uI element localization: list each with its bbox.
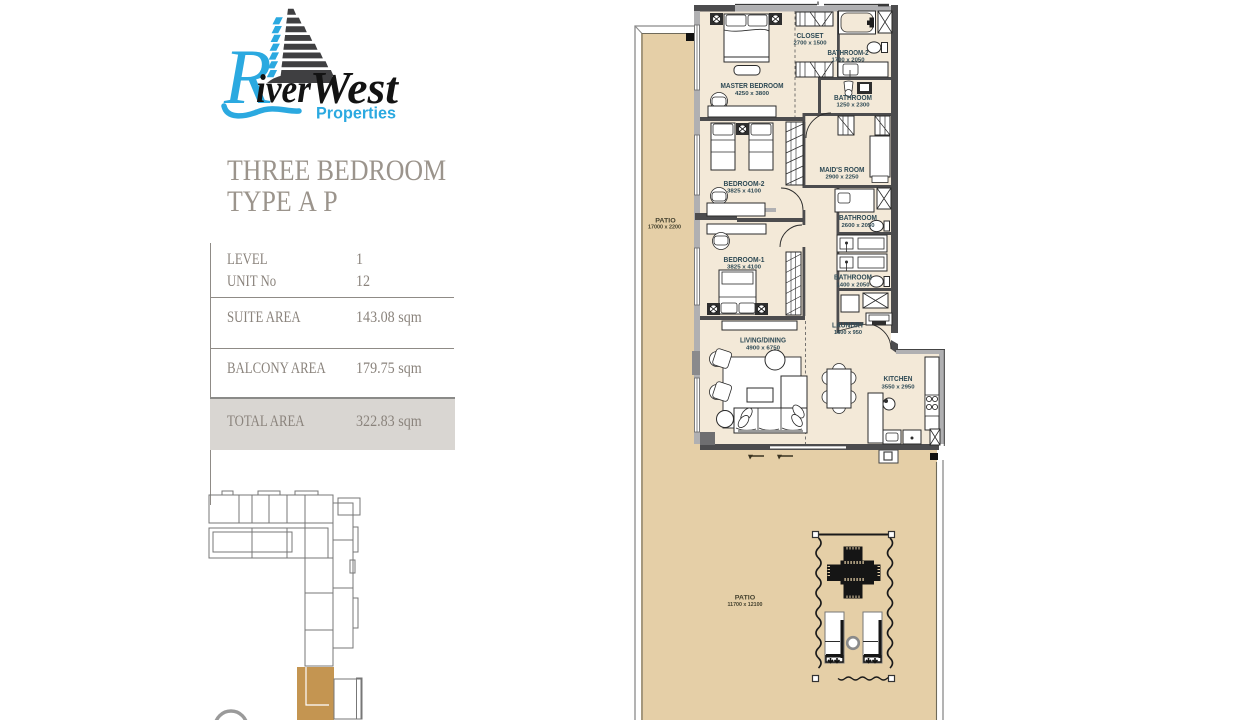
svg-text:BATHROOM: BATHROOM [839, 215, 877, 222]
svg-text:4900 x 6750: 4900 x 6750 [746, 346, 780, 352]
svg-text:11700 x 12100: 11700 x 12100 [728, 602, 763, 608]
svg-text:BEDROOM-2: BEDROOM-2 [724, 181, 765, 188]
svg-text:BEDROOM-1: BEDROOM-1 [724, 257, 765, 264]
svg-text:2700 x 1500: 2700 x 1500 [794, 41, 827, 47]
svg-text:2600 x 2050: 2600 x 2050 [842, 223, 875, 229]
svg-text:MAID'S ROOM: MAID'S ROOM [820, 167, 865, 174]
svg-text:2900 x 2250: 2900 x 2250 [826, 175, 859, 181]
svg-text:LIVING/DINING: LIVING/DINING [740, 337, 787, 344]
svg-text:MASTER BEDROOM: MASTER BEDROOM [721, 83, 784, 90]
svg-text:CLOSET: CLOSET [797, 33, 825, 40]
svg-text:Properties: Properties [316, 105, 396, 123]
svg-text:3825 x 4100: 3825 x 4100 [727, 265, 761, 271]
svg-text:KITCHEN: KITCHEN [884, 376, 913, 383]
svg-text:1800 x 950: 1800 x 950 [834, 330, 862, 336]
svg-text:17000 x 2200: 17000 x 2200 [648, 225, 681, 231]
svg-text:4250 x 3800: 4250 x 3800 [735, 91, 769, 97]
svg-text:1250 x 2300: 1250 x 2300 [837, 103, 870, 109]
svg-text:LAUNDRY: LAUNDRY [832, 323, 864, 330]
svg-text:BATHROOM: BATHROOM [834, 95, 872, 102]
svg-text:3550 x 2950: 3550 x 2950 [882, 385, 915, 391]
svg-text:PATIO: PATIO [655, 217, 676, 224]
svg-text:PATIO: PATIO [735, 595, 756, 602]
svg-text:1400 x 2050: 1400 x 2050 [837, 283, 870, 289]
svg-text:BATHROOM-2: BATHROOM-2 [828, 50, 869, 57]
svg-text:3825 x 4100: 3825 x 4100 [727, 189, 761, 195]
svg-text:iver: iver [256, 66, 311, 111]
svg-text:BATHROOM: BATHROOM [834, 275, 872, 282]
svg-text:1700 x 2050: 1700 x 2050 [832, 58, 865, 64]
